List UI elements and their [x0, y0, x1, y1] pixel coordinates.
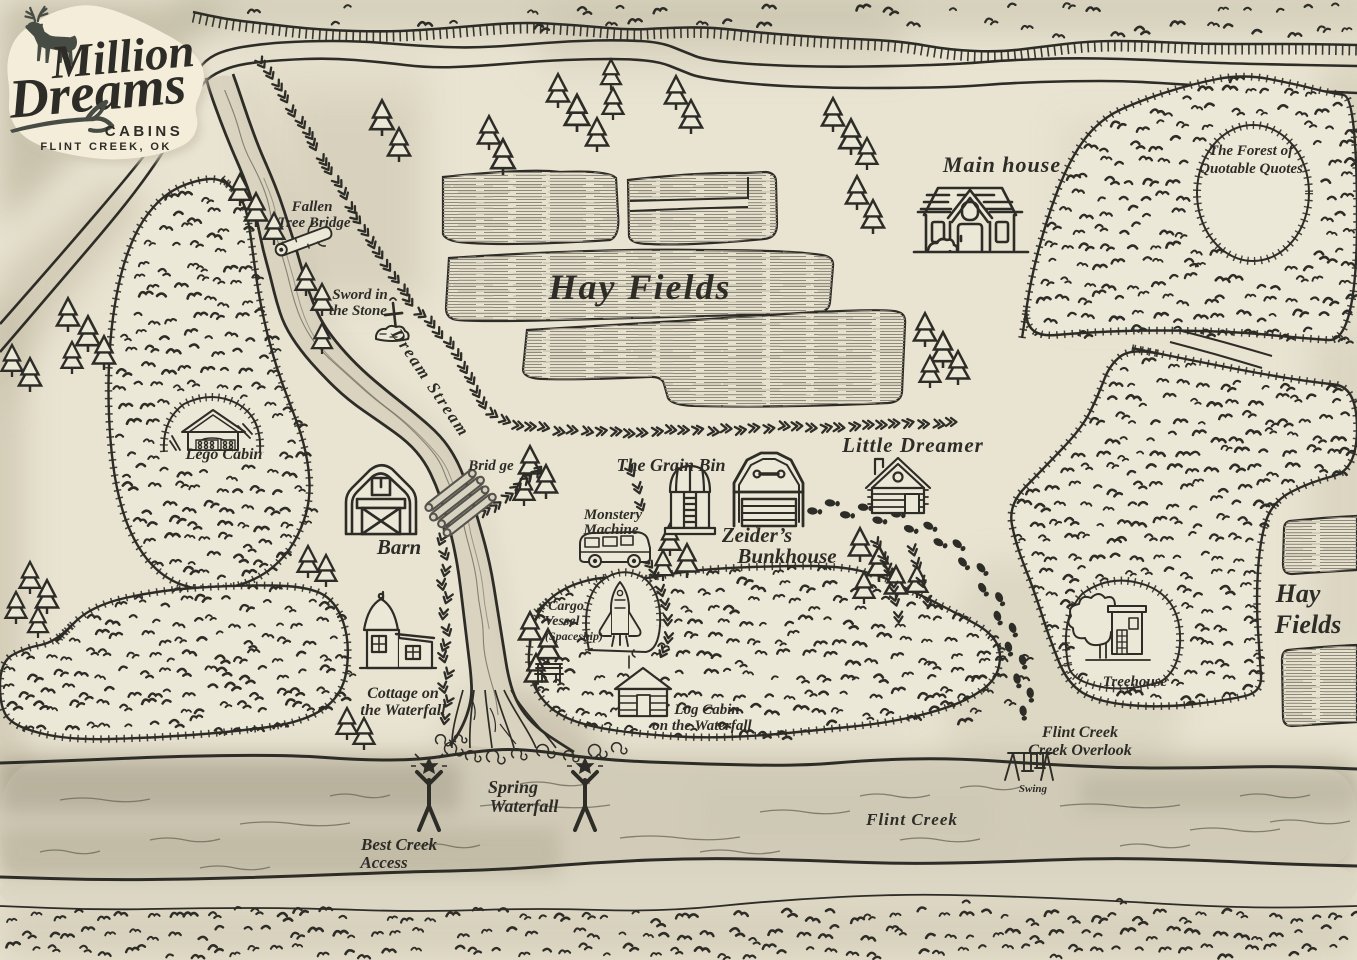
svg-text:CABINS: CABINS — [105, 123, 184, 140]
svg-text:The Forest of: The Forest of — [1209, 143, 1295, 159]
svg-text:Sword in: Sword in — [332, 287, 387, 303]
svg-text:Access: Access — [359, 853, 408, 872]
svg-text:Waterfall: Waterfall — [490, 796, 559, 816]
svg-text:Swing: Swing — [1019, 783, 1048, 795]
svg-text:Machine: Machine — [582, 522, 638, 538]
svg-text:Quotable Quotes: Quotable Quotes — [1199, 161, 1303, 177]
svg-text:Flint Creek: Flint Creek — [865, 810, 958, 829]
svg-text:FLINT CREEK, OK: FLINT CREEK, OK — [40, 141, 171, 153]
svg-text:Hay Fields: Hay Fields — [548, 267, 732, 307]
svg-text:the Waterfall: the Waterfall — [360, 702, 446, 719]
svg-text:Barn: Barn — [376, 535, 421, 559]
svg-text:Treehouse: Treehouse — [1103, 674, 1168, 690]
svg-text:Brid ge: Brid ge — [467, 458, 514, 474]
svg-text:Lego Cabin: Lego Cabin — [185, 446, 263, 463]
svg-text:on the Waterfall: on the Waterfall — [652, 718, 752, 734]
svg-text:Creek Overlook: Creek Overlook — [1028, 742, 1132, 759]
svg-text:Bunkhouse: Bunkhouse — [736, 544, 836, 568]
svg-text:Vessel: Vessel — [545, 614, 580, 629]
svg-text:Spring: Spring — [488, 777, 538, 797]
svg-text:Fallen: Fallen — [291, 199, 333, 215]
svg-text:the Stone: the Stone — [329, 303, 387, 319]
svg-text:Hay: Hay — [1275, 579, 1321, 608]
svg-text:Flint Creek: Flint Creek — [1041, 724, 1118, 741]
svg-text:Cottage on: Cottage on — [367, 685, 439, 702]
svg-text:Main house: Main house — [942, 152, 1061, 177]
svg-text:(Spaceship): (Spaceship) — [545, 629, 603, 643]
svg-text:Best Creek: Best Creek — [360, 835, 438, 854]
svg-text:Fields: Fields — [1274, 610, 1341, 639]
svg-text:Log Cabin: Log Cabin — [673, 702, 739, 718]
svg-text:The Grain Bin: The Grain Bin — [616, 455, 725, 475]
svg-text:Tree Bridge: Tree Bridge — [277, 215, 351, 231]
svg-text:Cargo: Cargo — [548, 599, 584, 614]
svg-text:Monstery: Monstery — [583, 507, 643, 523]
svg-text:Little Dreamer: Little Dreamer — [841, 433, 984, 457]
